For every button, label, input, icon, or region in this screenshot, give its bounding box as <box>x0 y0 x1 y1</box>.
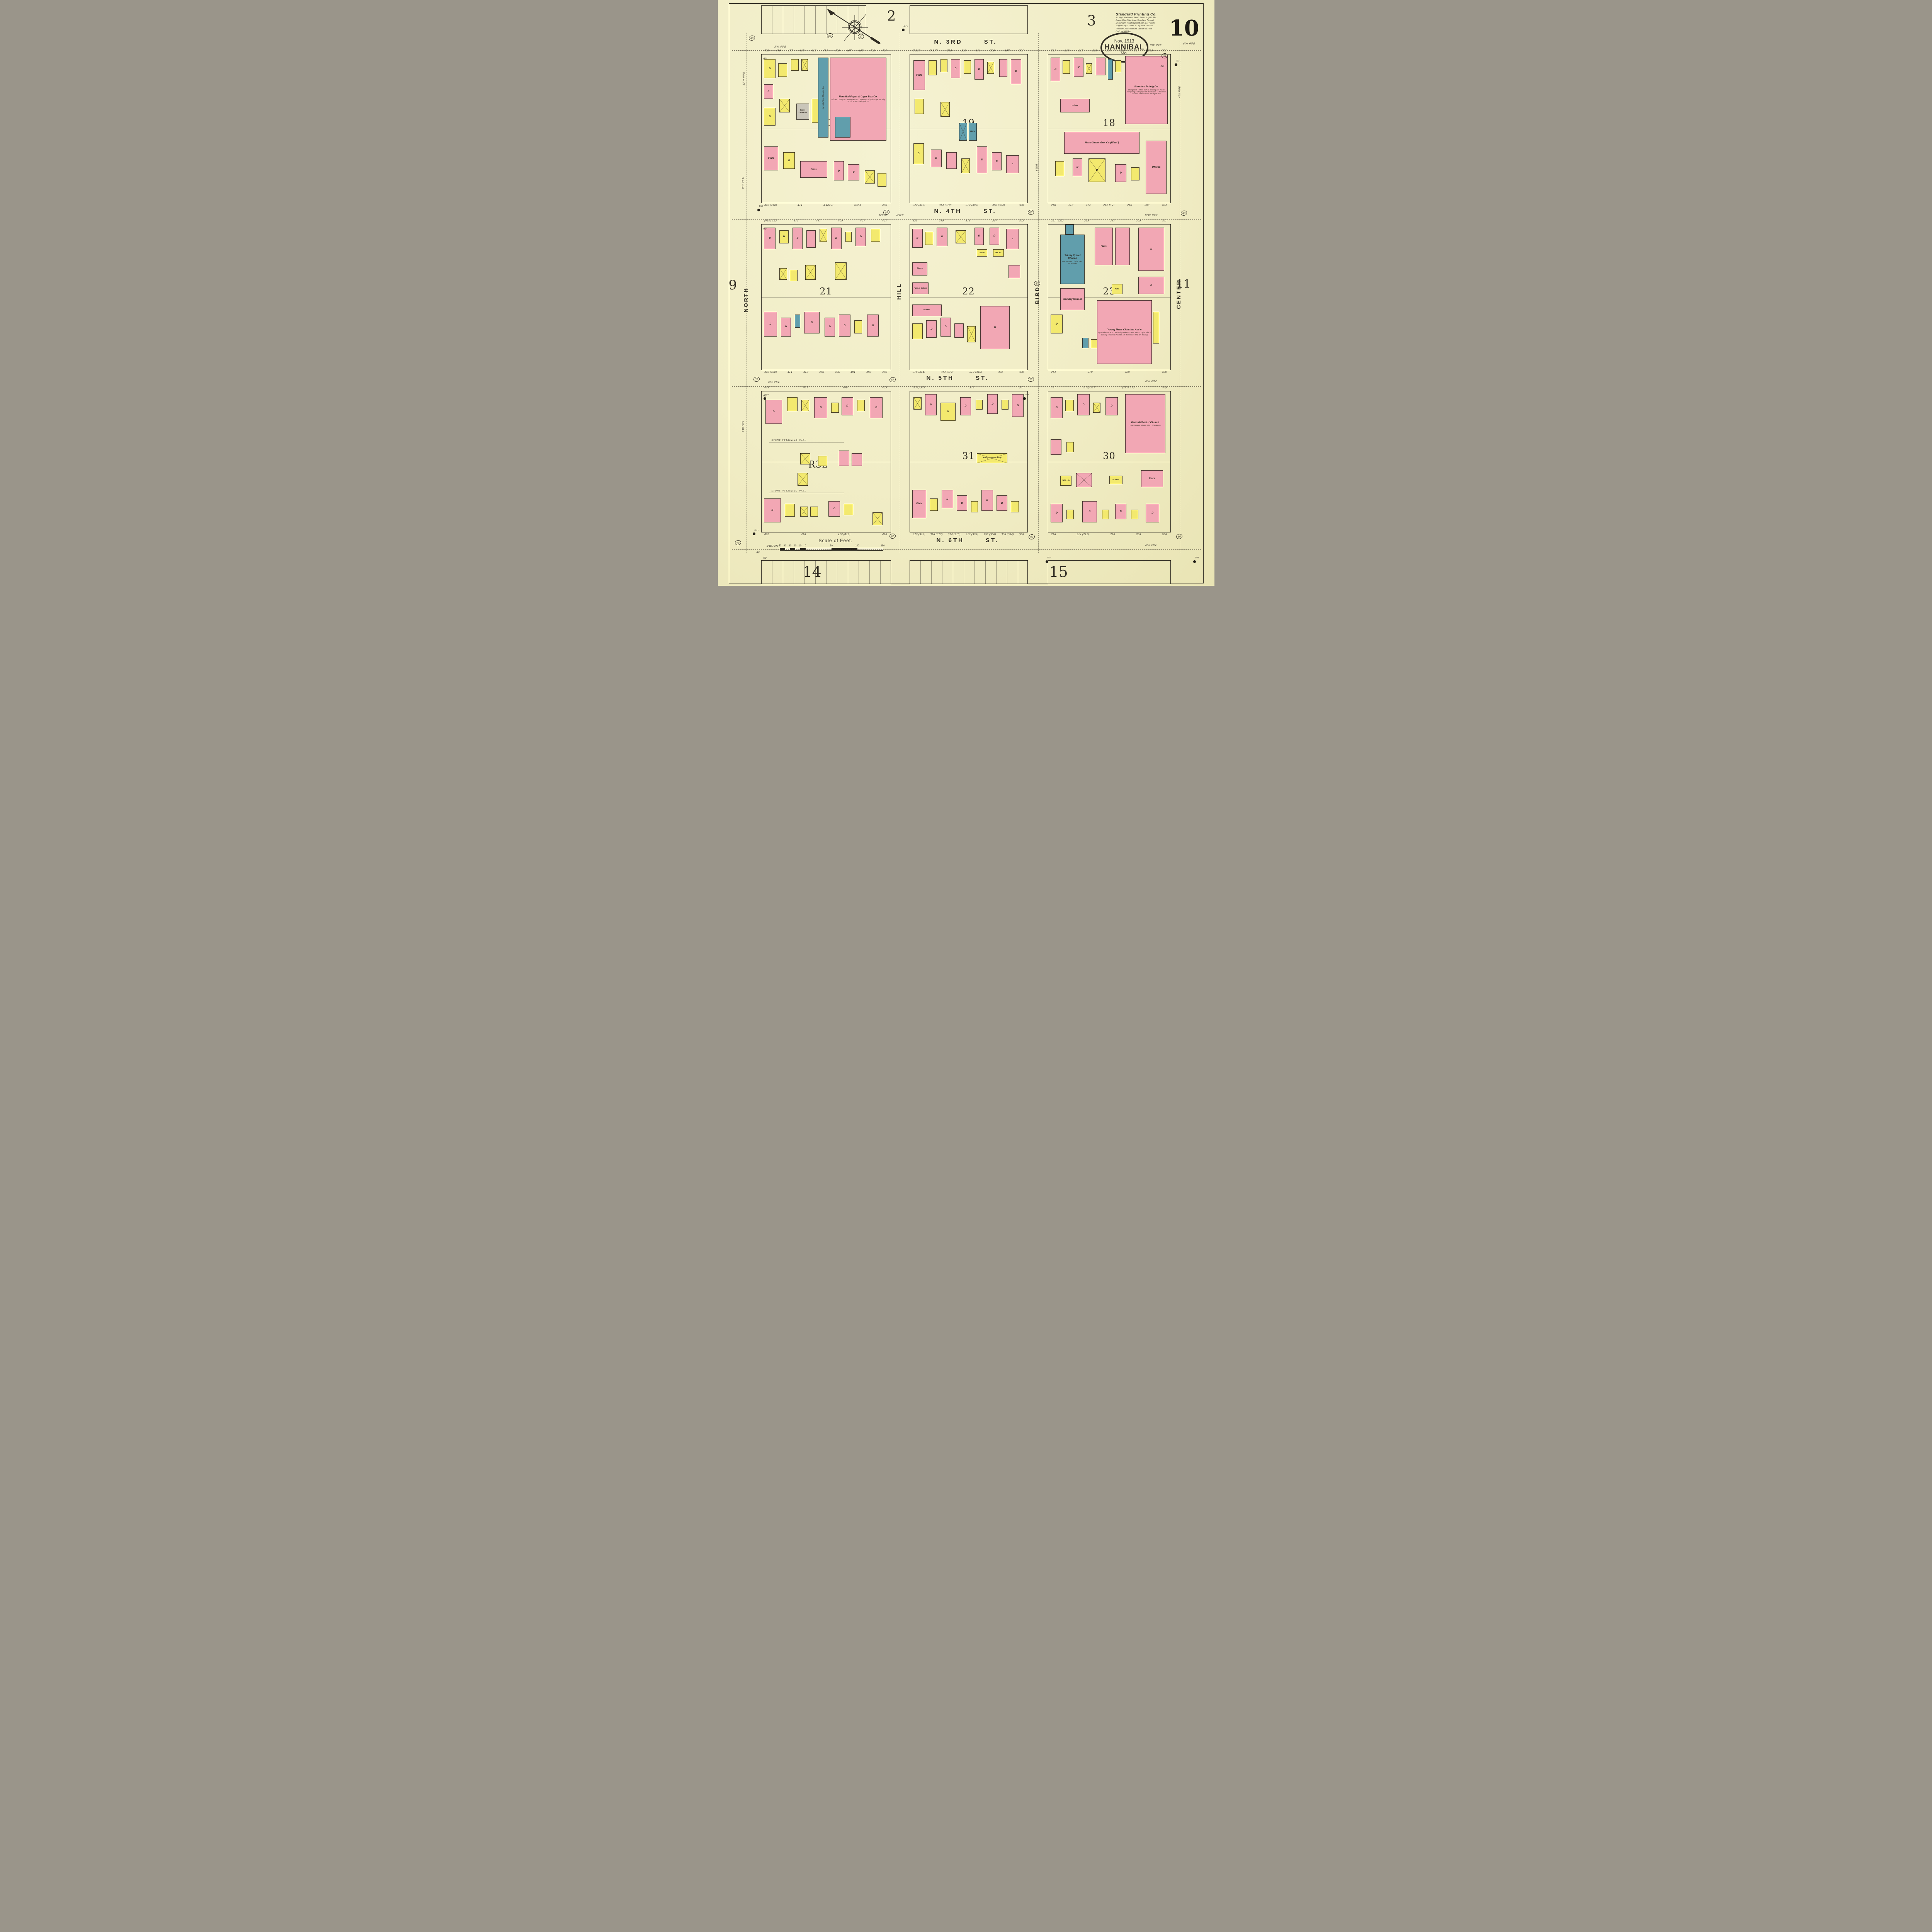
building <box>852 453 862 466</box>
wall-label: STONE RETAINING WALL <box>772 439 806 442</box>
scale-tick: 50 <box>830 545 833 547</box>
building-label: D <box>978 68 980 71</box>
street-name: N. 6TH <box>937 537 964 544</box>
building <box>1086 63 1092 74</box>
building: D <box>1073 158 1082 176</box>
building: Flats <box>912 262 928 276</box>
building <box>1063 60 1070 74</box>
building-label: Young Mens Christian Ass'n <box>1107 328 1142 332</box>
building-label: D <box>852 171 855 174</box>
house-number-row: 320 (316)316 (312)314 (310)312 (308)308 … <box>910 533 1027 536</box>
street-label-n-3rd: N. 3RDST. <box>934 39 997 45</box>
building <box>1051 439 1061 455</box>
building: D <box>842 397 853 415</box>
building-label: D <box>875 406 878 409</box>
building <box>1153 312 1159 344</box>
double-hydrant-marker: D.H. <box>757 209 760 211</box>
building <box>1131 167 1139 181</box>
house-number: 205 <box>1148 49 1153 52</box>
building: D <box>831 228 842 249</box>
house-number: 402 A <box>854 204 862 207</box>
building: Flats <box>764 146 778 170</box>
building-label: Flats <box>768 157 774 160</box>
house-number: 300 <box>1019 533 1024 536</box>
house-number: 312 (306) <box>966 204 979 207</box>
building <box>1002 400 1009 410</box>
building: D <box>925 394 937 415</box>
building: Out Ho. <box>912 304 942 316</box>
house-number: 216 <box>1051 533 1056 536</box>
building: D <box>793 228 803 249</box>
building-sublabel: Heat: Furnace · Lights: Elec. · 18' to E… <box>1129 424 1162 426</box>
building: D <box>764 108 776 126</box>
building <box>956 230 966 243</box>
building <box>810 507 818 516</box>
building-label: D <box>1151 512 1154 515</box>
building: Auto. <box>1112 284 1122 294</box>
building: D <box>1105 397 1118 415</box>
building: D <box>1011 59 1021 84</box>
building-label: Offices <box>1151 166 1161 169</box>
building <box>1108 59 1113 80</box>
building: D <box>764 59 776 78</box>
building <box>929 60 937 75</box>
hydrant-marker: 49 <box>1180 210 1187 216</box>
double-hydrant-label: D.H. <box>759 205 764 207</box>
building <box>967 326 975 342</box>
building-label: Standard Print'g Co. <box>1134 85 1159 88</box>
building: D <box>957 495 967 511</box>
building <box>964 60 971 74</box>
building-label: D <box>954 67 957 70</box>
building: D <box>912 229 923 248</box>
scale-of-feet: Scale of Feet. 5040302010050100150 <box>780 538 892 551</box>
building <box>800 453 811 464</box>
building <box>785 504 795 517</box>
building: Park Methodist ChurchHeat: Furnace · Lig… <box>1125 394 1165 453</box>
building: D <box>997 495 1007 511</box>
double-hydrant-label: D.H. <box>1195 557 1199 559</box>
building: D <box>1115 164 1126 182</box>
building <box>930 498 938 511</box>
building-label: D <box>859 235 862 238</box>
house-number: 307 <box>1004 49 1010 52</box>
pipe-label: 6"W. PIPE <box>1145 380 1157 383</box>
double-hydrant-marker: D.H. <box>1023 397 1026 400</box>
building <box>844 504 853 515</box>
building: D <box>781 318 791 337</box>
block-number: 18 <box>1103 117 1116 128</box>
frame-left <box>729 3 730 583</box>
block-22: 22DDDD2Out Ho.Out Ho.FlatsFlats in Gable… <box>910 224 1028 370</box>
street-label-bird: BIRD <box>1034 274 1040 316</box>
house-number-row: 422 (420)414410408406404402400 <box>761 371 890 374</box>
building: D <box>981 490 993 511</box>
house-number: 311 <box>976 49 981 52</box>
building-label: D <box>947 410 949 413</box>
building-label: Auto Ho. <box>1061 480 1070 482</box>
building: Sunday School <box>1060 288 1085 310</box>
water-pipe-line <box>732 219 1201 220</box>
building <box>999 59 1007 77</box>
building-sublabel: Gymnasium 1st & 2d · Swimming Pool Bst. … <box>1097 332 1151 336</box>
building: Auto Ho. <box>1060 476 1071 485</box>
house-number: 400 <box>882 371 887 374</box>
building <box>800 507 808 516</box>
building-label: D <box>946 498 949 501</box>
building: D <box>940 403 956 421</box>
water-pipe-line <box>1038 33 1039 553</box>
stone-retaining-wall: STONE RETAINING WALL <box>769 493 844 493</box>
house-number: 423 <box>764 49 769 52</box>
building <box>1066 442 1074 452</box>
building-label: D <box>1017 404 1019 407</box>
house-number: 314 (312) <box>941 371 954 374</box>
building: D <box>834 161 844 180</box>
building <box>805 265 816 280</box>
building <box>1093 403 1100 412</box>
building <box>801 59 808 71</box>
double-hydrant-label: D.H. <box>765 394 770 396</box>
building-label: D <box>769 237 771 240</box>
building <box>1076 473 1092 487</box>
building <box>818 456 827 466</box>
building-label: D <box>1119 172 1122 175</box>
building-sublabel: Storage Bst. · Office: Stat'y & Shipping… <box>1126 89 1168 95</box>
building-label: Haas-Lieber Gro. Co (Whol.) <box>1085 141 1119 145</box>
printing-company-note: Standard Printing Co. No Night Watchman.… <box>1116 12 1193 33</box>
house-number: 411 <box>823 49 828 52</box>
water-pipe-line <box>732 50 1201 51</box>
building-label: D <box>991 403 994 406</box>
adjacent-sheet-number: 2 <box>887 9 896 24</box>
building: D <box>940 318 951 337</box>
double-hydrant-marker: D.H. <box>1193 560 1196 563</box>
building-label: D <box>767 90 770 93</box>
street-name: N. 3RD <box>934 39 963 45</box>
building <box>971 501 978 512</box>
building: D <box>926 320 937 338</box>
building <box>854 320 862 333</box>
building-label: Hannibal Gas Machine Co. <box>822 85 825 109</box>
double-hydrant-marker: D.H. <box>1046 560 1048 563</box>
building <box>787 397 798 411</box>
house-number-row: 322 (316)314 (310)312 (306)308 (304)300 <box>910 204 1027 207</box>
building: Flats <box>1141 470 1163 487</box>
building: D <box>1077 394 1090 415</box>
building: D <box>975 59 984 80</box>
building <box>798 473 808 486</box>
hydrant-marker: 67 <box>1027 209 1034 216</box>
building <box>795 315 800 328</box>
house-number: 315 <box>947 49 952 52</box>
building-sublabel: Office & Cutting 1st · Storage Rm 1st · … <box>830 99 886 103</box>
house-number: 314 (310) <box>948 533 961 536</box>
block-alley-line <box>910 297 1027 298</box>
building: Brass Furnaces <box>796 104 809 120</box>
building <box>959 123 967 141</box>
house-number: 420 <box>764 533 769 536</box>
building: Private <box>1060 99 1090 112</box>
house-number: 204 <box>1162 204 1167 207</box>
street-width-label: 60' <box>764 556 767 560</box>
building: D <box>990 228 999 245</box>
double-hydrant-marker: D.H. <box>1175 63 1177 66</box>
building-label: D <box>930 328 933 331</box>
street-width-label: 60' <box>764 57 767 60</box>
building-label: D <box>833 507 836 510</box>
street-width-label: 60' <box>1161 65 1165 68</box>
double-hydrant-label: D.H. <box>904 25 908 27</box>
building-label: D <box>838 170 840 173</box>
building: D <box>1051 397 1063 418</box>
house-number: 415 <box>799 49 805 52</box>
house-number: 221 <box>1051 49 1056 52</box>
building <box>1066 510 1074 519</box>
building-label: D <box>986 499 989 502</box>
building-label: Flats in Gables <box>913 287 927 290</box>
building <box>820 229 827 242</box>
street-suffix: ST. <box>984 39 997 45</box>
house-number: 208 <box>1125 371 1130 374</box>
building <box>779 99 790 112</box>
house-number: 419 <box>776 49 781 52</box>
house-number: 401 <box>882 49 887 52</box>
block-30: 30DDDPark Methodist ChurchHeat: Furnace … <box>1048 391 1171 532</box>
building: D <box>931 150 941 167</box>
scale-tick: 0 <box>805 545 806 547</box>
building: D <box>804 312 820 333</box>
house-number: 418 <box>801 533 806 536</box>
adjacent-block-strip <box>761 5 866 34</box>
building-label: D <box>796 237 799 240</box>
building: D <box>1082 501 1097 522</box>
building: Haas-Lieber Gro. Co (Whol.) <box>1064 132 1140 154</box>
house-number: 404 <box>850 371 856 374</box>
house-number: 409 <box>835 49 840 52</box>
house-number: 314 (310) <box>939 204 952 207</box>
building <box>954 323 964 338</box>
building-label: Stone <box>969 131 975 133</box>
building: D <box>855 228 866 247</box>
building-label: D <box>1150 284 1153 287</box>
adjacent-sheet-number: 15 <box>1049 563 1068 580</box>
pipe-label: 8"W. PIPE <box>1150 44 1162 47</box>
house-number: 413 <box>811 49 816 52</box>
house-number: 416 (412) <box>837 533 850 536</box>
building: Flats <box>1095 228 1113 265</box>
building: Flats in Gables <box>912 282 929 294</box>
pipe-label: 6"W. PIPE <box>766 545 778 548</box>
building: Out Ho. <box>993 249 1003 257</box>
building-label: Private <box>1071 105 1078 107</box>
house-number: 312 (308) <box>966 533 979 536</box>
building <box>806 230 815 248</box>
building-label: D <box>769 115 771 118</box>
building-label: Out Ho. <box>978 252 986 254</box>
block-alley-line <box>762 297 891 298</box>
street-label-n-6th: N. 6THST. <box>937 537 999 544</box>
house-number: 216 <box>1068 204 1073 207</box>
double-hydrant-marker: D.H. <box>753 532 755 535</box>
house-number: 410 <box>882 533 887 536</box>
house-number: 219 <box>1065 49 1070 52</box>
printing-note-line: Cap'cy 4500 Gals. <box>1116 31 1193 33</box>
double-hydrant-label: D.H. <box>1048 557 1052 559</box>
building <box>835 117 850 138</box>
printing-note-line: Power: Elec. Mtrs. Auto. Sprinklers Thro… <box>1116 19 1193 22</box>
building <box>1131 510 1138 519</box>
house-number: 407 <box>847 49 852 52</box>
house-number: 210 <box>1088 371 1093 374</box>
building-label: Out Ho. <box>1112 479 1119 481</box>
street-label-hill: HILL <box>896 270 902 313</box>
building-label: D <box>961 502 963 505</box>
house-number: 312 (310) <box>969 371 983 374</box>
pipe-label: 6"W. PIPE <box>1183 43 1195 45</box>
building: D <box>1146 504 1159 522</box>
street-label-n-4th: N. 4THST. <box>934 208 997 214</box>
building-label: D <box>1001 502 1003 505</box>
building-label: 2 <box>1012 238 1014 240</box>
building-label: D <box>964 405 967 408</box>
house-number: 403 <box>870 49 876 52</box>
house-number: 300 <box>1019 204 1024 207</box>
building-label: D <box>978 235 980 238</box>
house-number: 400 <box>882 204 887 207</box>
sanborn-map-sheet: S 10 Nov. 1913 HANNIBAL Mo. Standard Pri… <box>718 0 1214 586</box>
building: D <box>764 228 776 249</box>
adjacent-block-strip <box>910 5 1028 34</box>
building-label: D <box>1150 248 1153 251</box>
building-label: D <box>1055 323 1058 326</box>
street-suffix: ST. <box>976 375 989 381</box>
building: Stone <box>969 123 977 141</box>
building-label: D <box>769 323 772 326</box>
house-number: 210 <box>1127 204 1132 207</box>
building-label: D <box>995 160 998 163</box>
building <box>839 451 849 466</box>
building-label: Flats <box>916 74 922 77</box>
scale-tick: 50 <box>779 545 781 547</box>
house-number: 320 (316) <box>912 533 925 536</box>
pipe-label: 10"W. PIPE <box>1144 214 1158 217</box>
hydrant-marker: 40 <box>748 35 755 41</box>
street-label-n-5th: N. 5THST. <box>927 375 989 381</box>
building-label: Auto. <box>1114 288 1120 291</box>
building-label: D <box>916 237 919 240</box>
building-label: Flats <box>916 502 922 505</box>
house-number: 207 <box>1134 49 1139 52</box>
building-label: Flats <box>1148 477 1155 480</box>
building: D <box>765 400 782 424</box>
house-number: 422 (420) <box>764 371 777 374</box>
frame-right <box>1203 3 1204 583</box>
building: D <box>980 306 1010 350</box>
printing-note-line: Supplied by 6" Conn. to City Main. 105 L… <box>1116 25 1193 27</box>
building-label: D <box>1088 510 1091 513</box>
house-number: 322 (316) <box>912 204 925 207</box>
street-width-label: 60' <box>764 227 767 230</box>
building <box>857 400 865 411</box>
building-label: Brass Furnaces <box>797 109 809 114</box>
house-number: 215 <box>1078 49 1084 52</box>
building <box>872 512 883 525</box>
house-number: 213 <box>1092 49 1098 52</box>
pipe-label: 12"W. PIPE <box>742 72 745 85</box>
house-number: 302 <box>998 371 1003 374</box>
house-number: 206 <box>1162 533 1167 536</box>
building: D <box>1074 58 1083 77</box>
adjacent-sheet-number: 9 <box>729 277 737 293</box>
block-alley-line <box>1048 462 1170 462</box>
house-number: 211 <box>1106 49 1112 52</box>
building-label: D <box>935 157 938 160</box>
block-number: 21 <box>820 286 832 297</box>
building <box>1011 501 1019 512</box>
building <box>1115 228 1130 265</box>
building-label: Flats <box>1100 245 1107 248</box>
building: D <box>937 228 947 247</box>
building-label: D <box>783 235 786 238</box>
building <box>845 232 852 242</box>
adjacent-block-strip <box>910 560 1028 584</box>
building-label: D <box>771 509 774 512</box>
scale-tick: 150 <box>881 545 884 547</box>
house-number: 206 <box>1144 204 1150 207</box>
house-number: 408 <box>819 371 824 374</box>
building: D <box>1138 277 1164 294</box>
building: D <box>783 152 795 168</box>
building-label: D <box>1015 70 1017 73</box>
building-label: D <box>993 235 996 238</box>
building-label: D <box>820 406 822 409</box>
building <box>878 173 886 187</box>
adjacent-sheet-number: 3 <box>1087 13 1096 29</box>
block-alley-line <box>910 462 1027 462</box>
building-label: D <box>788 159 791 162</box>
house-number-row: 221219215213211209207205201 <box>1048 49 1170 52</box>
building-label: D <box>828 325 831 328</box>
building <box>778 63 787 77</box>
block-r32: R32DDDDDDSTONE RETAINING WALLSTONE RETAI… <box>761 391 891 532</box>
building: Flats <box>913 60 925 90</box>
pipe-label: 6"W. PIPE <box>768 381 780 384</box>
building <box>1055 161 1064 176</box>
building: D <box>764 84 773 99</box>
building-label: Sunday School <box>1063 298 1082 301</box>
building <box>1082 338 1088 348</box>
house-number: 308 (304) <box>992 204 1005 207</box>
building: Out Ho. <box>977 249 987 257</box>
building-label: D <box>994 326 997 329</box>
house-number: 402 <box>866 371 872 374</box>
building-label: Auto (Common Roof) <box>982 457 1002 459</box>
house-number: 309 <box>990 49 995 52</box>
house-number: 218 <box>1051 204 1056 207</box>
hydrant-marker: 75 <box>734 540 741 546</box>
building <box>987 62 994 74</box>
hydrant-marker: 78 <box>753 376 760 383</box>
water-pipe-line <box>747 33 747 553</box>
house-number: 313 <box>961 49 966 52</box>
house-number: 208 <box>1136 533 1141 536</box>
building <box>940 59 947 73</box>
street-name: N. 4TH <box>934 208 962 214</box>
building: D <box>942 490 953 508</box>
house-number: 414 <box>797 204 803 207</box>
block-number: 30 <box>1103 451 1116 461</box>
